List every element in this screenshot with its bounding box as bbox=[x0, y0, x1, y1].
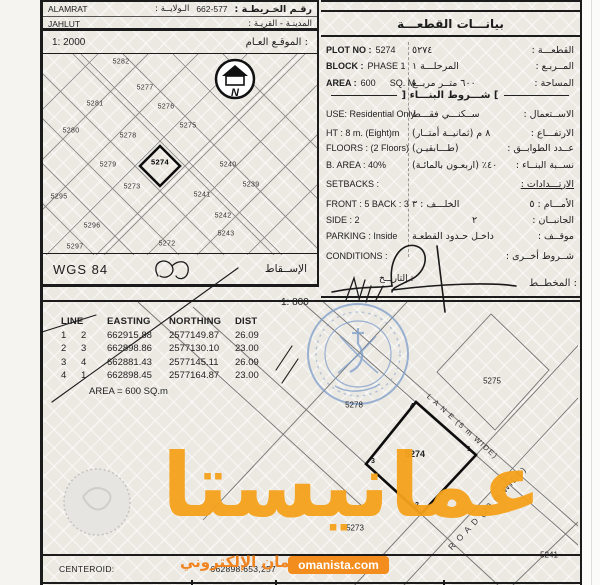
plot-info-row: B. AREA : 40% نســبة البنــاء :٤٠٪ (اربع… bbox=[326, 157, 574, 173]
field-value-ar: (طـــابقيـن) bbox=[412, 143, 459, 154]
field-value-ar: المرحلـــة ١ bbox=[412, 61, 459, 72]
field-label-ar: الجانبــان : bbox=[532, 215, 574, 226]
watermark-site-badge: omanista.com bbox=[288, 556, 389, 574]
embossed-seal bbox=[64, 469, 130, 535]
cell: 1 bbox=[61, 330, 81, 341]
map-plot-label: 5296 bbox=[84, 223, 101, 230]
map-plot-label: 5241 bbox=[194, 192, 211, 199]
field-en: SIDE : 2 bbox=[326, 215, 412, 225]
field-en: FRONT : 5 BACK : 3 bbox=[326, 199, 412, 209]
col-dist: DIST bbox=[235, 316, 271, 327]
village-name: JAHLUT bbox=[48, 19, 80, 29]
map-plot-label: 5297 bbox=[67, 244, 84, 251]
field-label-ar: الاســتعمال : bbox=[523, 109, 574, 120]
cell: 1 bbox=[81, 370, 107, 381]
watermark-brand: عمانيستا bbox=[162, 438, 542, 535]
map-plot-label: 5277 bbox=[137, 85, 154, 92]
map-plot-label: 5281 bbox=[87, 101, 104, 108]
map-header: ALAMRAT رقـم الخـريطـة : 662-577 الـولاي… bbox=[43, 2, 317, 31]
field-value-ar: ٥٢٧٤ bbox=[412, 45, 432, 56]
table-divider bbox=[191, 580, 193, 585]
plot-info-row: FRONT : 5 BACK : 3 الأمـــام : ٥الخلـــف… bbox=[326, 196, 574, 212]
map-number-label: رقـم الخـريطـة : bbox=[235, 4, 312, 15]
map-plot-label-highlighted: 5274 bbox=[151, 158, 169, 167]
field-value-ar: الخلـــف : ٣ bbox=[412, 199, 459, 210]
site-plot-label: 5278 bbox=[345, 401, 363, 410]
map-number-value: 662-577 bbox=[196, 4, 227, 14]
map-plot-label: 5273 bbox=[124, 184, 141, 191]
north-letter: N bbox=[231, 87, 240, 99]
projection-label: الإســقاط bbox=[265, 263, 307, 275]
region-name: ALAMRAT bbox=[48, 4, 88, 14]
cell: 26.09 bbox=[235, 357, 271, 368]
field-label-ar: المــربـع : bbox=[535, 61, 574, 72]
field-label-ar: شــروط أخــرى : bbox=[506, 251, 574, 262]
corner-number: 4 bbox=[410, 403, 414, 410]
field-en: SETBACKS : bbox=[326, 179, 412, 189]
col-northing: NORTHING bbox=[169, 316, 235, 327]
plot-info-title: بيانـــات القطعـــة bbox=[321, 10, 580, 37]
plot-info-row: FLOORS : (2 Floors) عــدد الطوابــق :(طـ… bbox=[326, 140, 574, 156]
table-divider bbox=[275, 580, 277, 585]
field-label-ar: عــدد الطوابــق : bbox=[507, 143, 574, 154]
field-en: HT : 8 m. (Eight)m bbox=[326, 128, 412, 138]
north-arrow-icon: N bbox=[213, 57, 257, 101]
field-label: PLOT NO : bbox=[326, 45, 372, 55]
table-row: 34 662881.432577145.1126.09 bbox=[61, 356, 271, 370]
field-label-ar: القطعـــة : bbox=[532, 45, 574, 56]
field-value-ar: ٢ bbox=[472, 215, 477, 226]
map-plot-label: 5239 bbox=[243, 182, 260, 189]
coords-header-row: LINE EASTING NORTHING DIST bbox=[61, 315, 271, 329]
map-plot-label: 5242 bbox=[215, 213, 232, 220]
map-plot-label: 5278 bbox=[120, 133, 137, 140]
centeroid-label: CENTEROID: bbox=[59, 564, 114, 574]
col-easting: EASTING bbox=[107, 316, 169, 327]
map-plot-label: 5280 bbox=[63, 128, 80, 135]
field-label-ar: المساحة : bbox=[534, 78, 574, 89]
datum-label: WGS 84 bbox=[53, 262, 108, 277]
field-label: AREA : bbox=[326, 78, 357, 88]
datum-row: WGS 84 الإســقاط bbox=[43, 253, 317, 284]
map-scale-row: 1: 2000 الموقـع العـام : bbox=[43, 31, 317, 54]
field-en: B. AREA : 40% bbox=[326, 160, 412, 170]
field-value: 600 bbox=[361, 78, 376, 88]
col-line: LINE bbox=[61, 316, 107, 327]
overview-map-panel: ALAMRAT رقـم الخـريطـة : 662-577 الـولاي… bbox=[43, 0, 319, 287]
table-row: 41 662898.452577164.8723.00 bbox=[61, 369, 271, 383]
coordinates-table: LINE EASTING NORTHING DIST 12 662915.882… bbox=[61, 315, 271, 397]
area-note: AREA = 600 SQ.m bbox=[89, 386, 271, 397]
map-plot-label: 5279 bbox=[100, 162, 117, 169]
plot-info-row: CONDITIONS : شــروط أخــرى : bbox=[326, 248, 574, 264]
table-row: 12 662915.882577149.8726.09 bbox=[61, 329, 271, 343]
plot-info-row: HT : 8 m. (Eight)m الارتفـــاع :٨ م (ثما… bbox=[326, 125, 574, 141]
map-plot-label: 5272 bbox=[159, 241, 176, 248]
cell: 2577164.87 bbox=[169, 370, 235, 381]
field-label-ar: نســبة البنــاء : bbox=[516, 160, 574, 171]
map-plot-label: 5295 bbox=[51, 194, 68, 201]
field-value-ar: ســكنـــي فقـــط bbox=[412, 109, 480, 120]
cell: 26.09 bbox=[235, 330, 271, 341]
wilaya-label: الـولايــة : bbox=[155, 4, 189, 14]
cell: 23.00 bbox=[235, 343, 271, 354]
cell: 3 bbox=[81, 343, 107, 354]
map-plot-label: 5243 bbox=[218, 231, 235, 238]
cell: 2 bbox=[81, 330, 107, 341]
cell: 662915.88 bbox=[107, 330, 169, 341]
planner-label: المخطــط : bbox=[529, 278, 577, 289]
field-en: USE: Residential Only bbox=[326, 109, 412, 119]
map-plot-label: 5240 bbox=[220, 162, 237, 169]
plot-info-row: SIDE : 2 الجانبــان :٢ bbox=[326, 212, 574, 228]
field-en: FLOORS : (2 Floors) bbox=[326, 143, 412, 153]
table-divider bbox=[443, 580, 445, 585]
cell: 4 bbox=[81, 357, 107, 368]
cell: 2577145.11 bbox=[169, 357, 235, 368]
plot-info-row: PLOT NO :5274 القطعـــة :٥٢٧٤ bbox=[326, 42, 574, 58]
plot-info-row: AREA :600SQ. M المساحة :٦٠٠ متــر مربــع bbox=[326, 75, 574, 91]
map-plot-label: 5276 bbox=[158, 104, 175, 111]
table-row: 23 662898.862577130.1023.00 bbox=[61, 342, 271, 356]
field-label-ar: الارتفـــاع : bbox=[531, 128, 574, 139]
city-village-label: المدينـة - القريـة : bbox=[248, 19, 312, 29]
field-value-ar: ٤٠٪ (اربعـون بالمائـة) bbox=[412, 160, 497, 171]
field-value-ar: داخـل حـدود القطعـة bbox=[412, 231, 494, 242]
field-value: 5274 bbox=[376, 45, 396, 55]
cell: 3 bbox=[61, 357, 81, 368]
site-plot-label: 5275 bbox=[483, 377, 501, 386]
cell: 23.00 bbox=[235, 370, 271, 381]
cell: 662898.45 bbox=[107, 370, 169, 381]
field-label-ar: الأمـــام : ٥ bbox=[529, 199, 574, 210]
plot-info-row: SETBACKS : الارتـــدادات : bbox=[326, 176, 574, 192]
field-label: BLOCK : bbox=[326, 61, 364, 71]
cell: 2 bbox=[61, 343, 81, 354]
cell: 2577130.10 bbox=[169, 343, 235, 354]
field-value-ar: ٨ م (ثمانيــة أمتــار) bbox=[412, 128, 490, 139]
plot-info-row: BLOCK :PHASE 1 المــربـع :المرحلـــة ١ bbox=[326, 58, 574, 74]
general-location-label: الموقـع العـام : bbox=[246, 37, 308, 48]
field-label-ar: الارتـــدادات : bbox=[521, 179, 574, 190]
field-en: CONDITIONS : bbox=[326, 251, 412, 261]
cell: 662881.43 bbox=[107, 357, 169, 368]
ministry-stamp bbox=[308, 304, 408, 404]
date-label: التاريــخ : bbox=[379, 274, 414, 284]
plot-info-row: PARKING : Inside موقــف :داخـل حـدود الق… bbox=[326, 228, 574, 244]
field-value: PHASE 1 bbox=[368, 61, 406, 71]
site-plan-scale: 1: 800 bbox=[281, 297, 309, 308]
field-label-ar: موقــف : bbox=[538, 231, 574, 242]
overview-scale: 1: 2000 bbox=[52, 37, 85, 48]
field-en: PARKING : Inside bbox=[326, 231, 412, 241]
cell: 662898.86 bbox=[107, 343, 169, 354]
cell: 2577149.87 bbox=[169, 330, 235, 341]
cell: 4 bbox=[61, 370, 81, 381]
building-conditions-title: ] شـــروط البنـــاء [ bbox=[326, 90, 574, 101]
map-plot-label: 5275 bbox=[180, 123, 197, 130]
scanned-krooki-document: ALAMRAT رقـم الخـريطـة : 662-577 الـولاي… bbox=[0, 0, 600, 585]
map-plot-label: 5282 bbox=[113, 59, 130, 66]
plot-info-row: USE: Residential Only الاســتعمال :ســكن… bbox=[326, 106, 574, 122]
field-value-ar: ٦٠٠ متــر مربــع bbox=[412, 78, 476, 89]
plot-info-panel: بيانـــات القطعـــة PLOT NO :5274 القطعـ… bbox=[321, 0, 580, 298]
